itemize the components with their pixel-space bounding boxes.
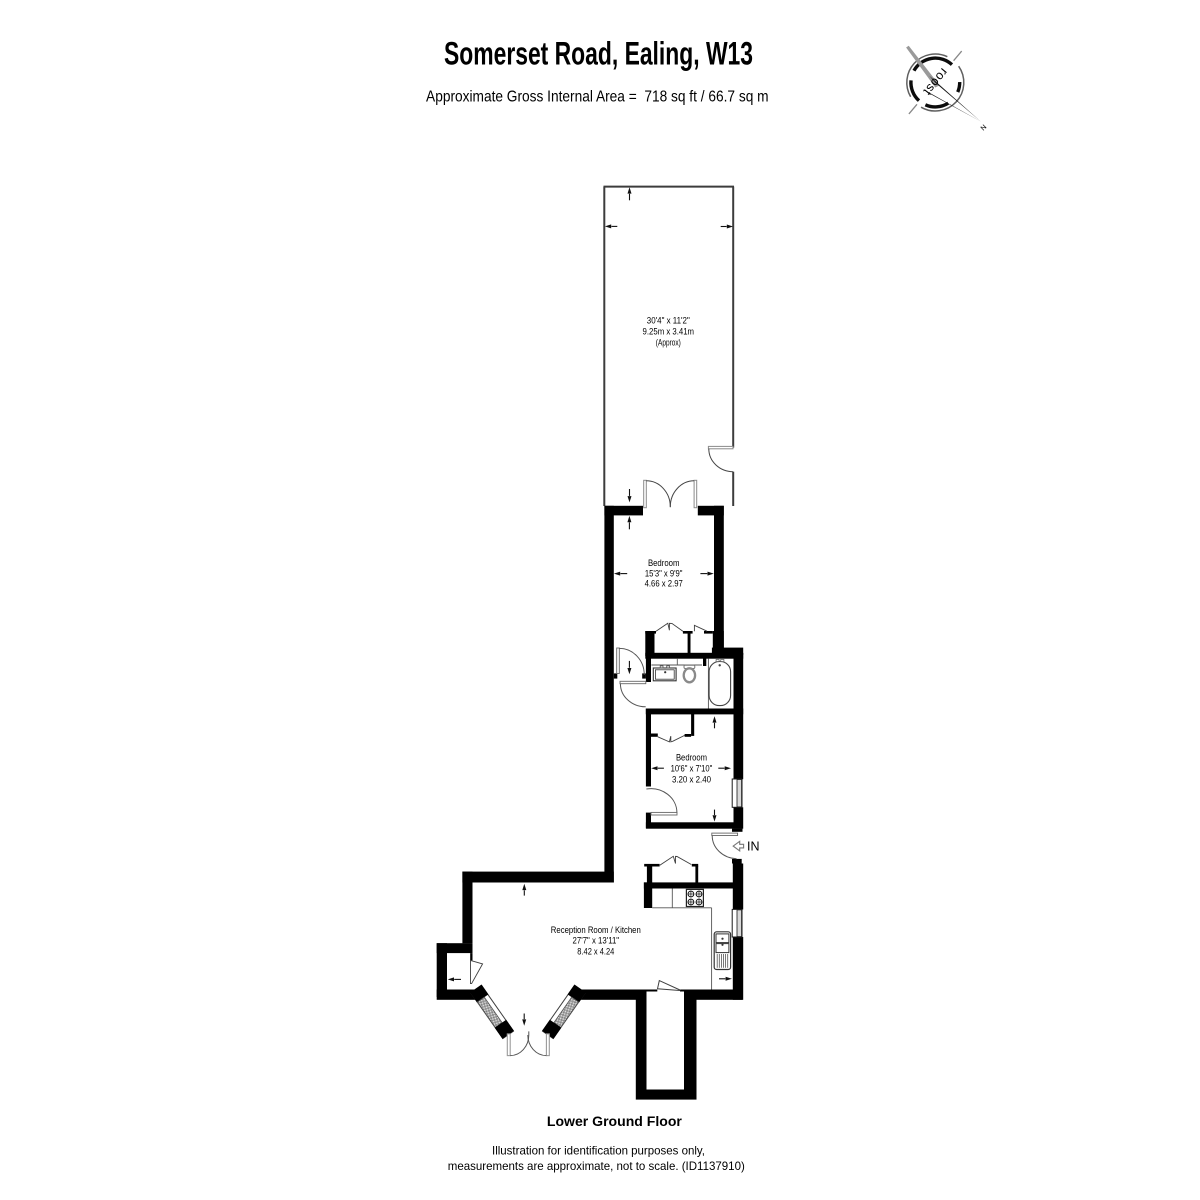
svg-text:27'7" x 13'11": 27'7" x 13'11"	[573, 935, 620, 946]
svg-text:4.66 x 2.97: 4.66 x 2.97	[645, 577, 683, 588]
svg-text:(Approx): (Approx)	[656, 337, 681, 348]
svg-text:Illustration for identificatio: Illustration for identification purposes…	[492, 1144, 705, 1158]
svg-text:30'4" x 11'2": 30'4" x 11'2"	[647, 314, 690, 325]
svg-text:Approximate Gross Internal Are: Approximate Gross Internal Area = 718 sq…	[426, 89, 769, 106]
svg-text:Somerset Road, Ealing, W13: Somerset Road, Ealing, W13	[444, 36, 753, 72]
svg-text:Bedroom: Bedroom	[676, 752, 707, 763]
svg-text:Reception Room / Kitchen: Reception Room / Kitchen	[551, 924, 641, 935]
svg-text:Lower Ground Floor: Lower Ground Floor	[547, 1114, 683, 1129]
svg-text:measurements are approximate,: measurements are approximate, not to sca…	[448, 1159, 745, 1173]
svg-text:10'6" x 7'10": 10'6" x 7'10"	[671, 762, 713, 773]
svg-text:8.42 x 4.24: 8.42 x 4.24	[577, 946, 614, 957]
svg-text:IN: IN	[747, 840, 760, 854]
svg-text:3.20 x 2.40: 3.20 x 2.40	[672, 774, 711, 785]
svg-text:9.25m x 3.41m: 9.25m x 3.41m	[643, 326, 695, 337]
